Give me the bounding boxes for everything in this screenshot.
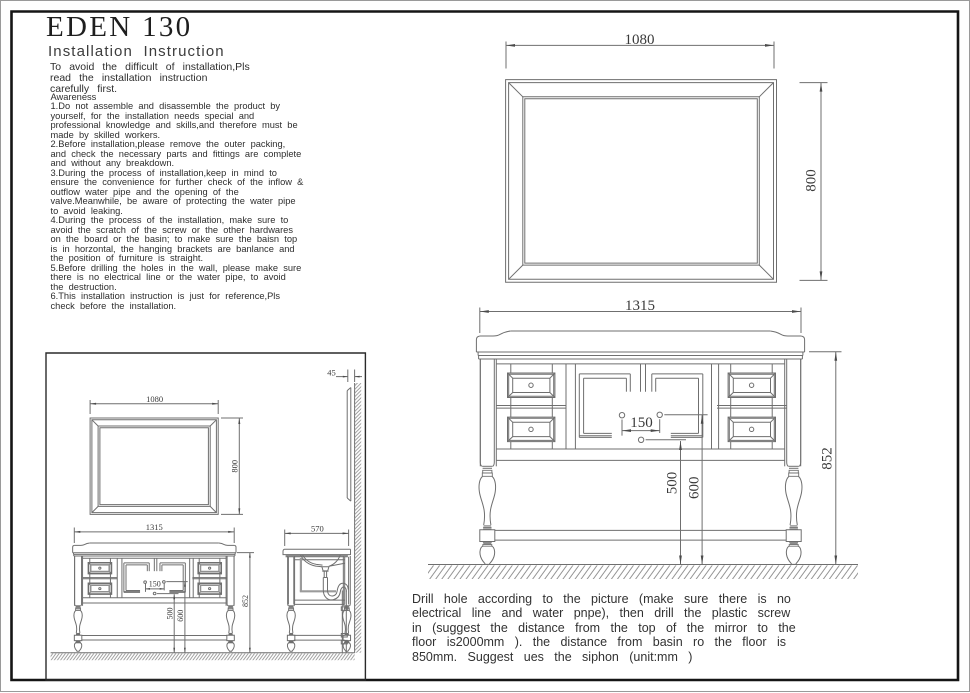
svg-text:45: 45 (327, 367, 336, 377)
svg-text:600: 600 (687, 476, 703, 499)
svg-text:800: 800 (229, 460, 239, 473)
svg-text:500: 500 (665, 472, 681, 495)
svg-text:150: 150 (149, 580, 161, 589)
svg-text:800: 800 (804, 169, 820, 192)
svg-text:852: 852 (241, 595, 250, 607)
svg-text:1080: 1080 (625, 32, 655, 48)
svg-text:1315: 1315 (625, 298, 655, 314)
svg-text:570: 570 (311, 524, 324, 534)
svg-text:852: 852 (820, 447, 836, 470)
svg-text:150: 150 (630, 415, 653, 431)
svg-text:600: 600 (176, 610, 185, 622)
svg-text:500: 500 (165, 608, 174, 620)
svg-text:1080: 1080 (146, 394, 163, 404)
svg-text:1315: 1315 (146, 522, 163, 532)
